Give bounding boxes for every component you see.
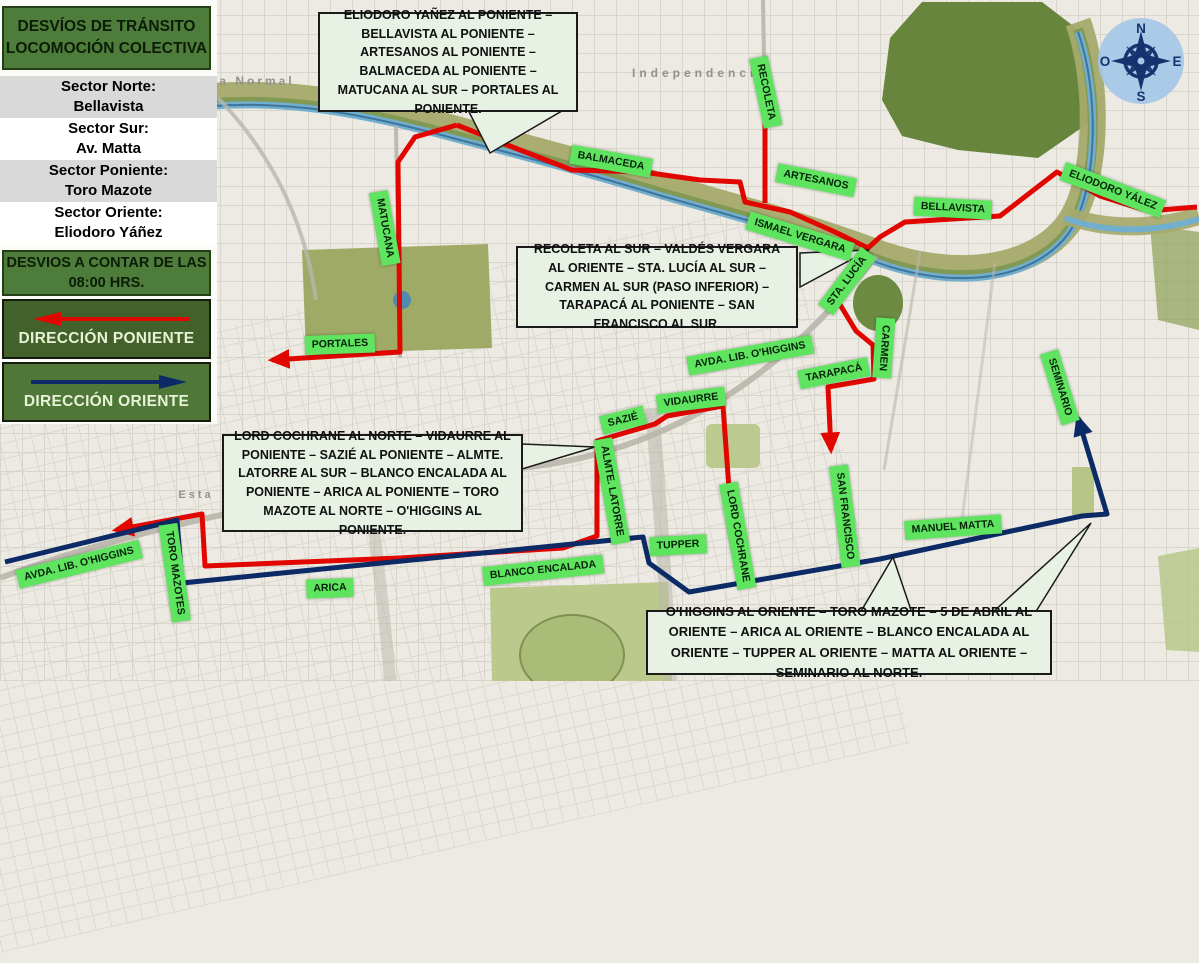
sector-label: Sector Oriente: xyxy=(54,203,162,223)
compass-west: O xyxy=(1100,54,1111,69)
map-text: Independencia xyxy=(632,66,768,80)
map-text: a Normal xyxy=(219,74,294,88)
callout-southwest-detour: LORD COCHRANE AL NORTE – VIDAURRE AL PON… xyxy=(222,434,523,532)
parque-almagro xyxy=(706,424,760,468)
direction-east-legend: DIRECCIÓN ORIENTE xyxy=(2,362,211,422)
compass-rose: N E S O xyxy=(1098,18,1184,104)
sector-norte: Sector Norte: Bellavista xyxy=(0,76,217,118)
callout-north-detour: ELIODORO YAÑEZ AL PONIENTE – BELLAVISTA … xyxy=(318,12,578,112)
east-arrow-icon xyxy=(17,374,197,390)
callout-text: LORD COCHRANE AL NORTE – VIDAURRE AL PON… xyxy=(233,427,512,540)
callout-text: RECOLETA AL SUR – VALDÉS VERGARA AL ORIE… xyxy=(527,240,787,334)
compass-south: S xyxy=(1136,89,1145,104)
compass-north: N xyxy=(1136,21,1146,36)
riverside-park-east xyxy=(1150,225,1199,330)
direction-west-legend: DIRECCIÓN PONIENTE xyxy=(2,299,211,359)
direction-east-label: DIRECCIÓN ORIENTE xyxy=(24,393,189,411)
page-title: DESVÍOS DE TRÁNSITO LOCOMOCIÓN COLECTIVA xyxy=(2,6,211,70)
start-time-notice: DESVIOS A CONTAR DE LAS 08:00 HRS. xyxy=(2,250,211,296)
direction-west-label: DIRECCIÓN PONIENTE xyxy=(19,330,195,348)
sector-value: Av. Matta xyxy=(76,139,141,159)
small-park-southeast xyxy=(1158,548,1199,652)
callout-text: O'HIGGINS AL ORIENTE – TORO MAZOTE – 5 D… xyxy=(657,602,1041,683)
callout-center-detour: RECOLETA AL SUR – VALDÉS VERGARA AL ORIE… xyxy=(516,246,798,328)
sector-label: Sector Sur: xyxy=(68,119,149,139)
street-label-portales: PORTALES xyxy=(304,334,375,355)
west-arrow-icon xyxy=(17,311,197,327)
street-label-arica: ARICA xyxy=(306,578,354,598)
cerro-san-cristobal-park xyxy=(882,2,1090,158)
sector-value: Toro Mazote xyxy=(65,181,152,201)
callout-text: ELIODORO YAÑEZ AL PONIENTE – BELLAVISTA … xyxy=(329,6,567,119)
city-map: N E S O Independenciaa NormalEsta RECOLE… xyxy=(0,0,1199,681)
compass-east: E xyxy=(1172,54,1181,69)
sector-value: Eliodoro Yáñez xyxy=(54,223,162,243)
sector-label: Sector Norte: xyxy=(61,77,156,97)
sector-label: Sector Poniente: xyxy=(49,161,168,181)
legend-panel: DESVÍOS DE TRÁNSITO LOCOMOCIÓN COLECTIVA… xyxy=(0,0,217,424)
map-text: Esta xyxy=(178,489,213,501)
street-label-tupper: TUPPER xyxy=(649,534,706,555)
sector-oriente: Sector Oriente: Eliodoro Yáñez xyxy=(0,202,217,244)
sector-sur: Sector Sur: Av. Matta xyxy=(0,118,217,160)
sector-poniente: Sector Poniente: Toro Mazote xyxy=(0,160,217,202)
sector-value: Bellavista xyxy=(73,97,143,117)
small-park xyxy=(1072,467,1094,515)
callout-southeast-detour: O'HIGGINS AL ORIENTE – TORO MAZOTE – 5 D… xyxy=(646,610,1052,675)
callout-pointer xyxy=(992,523,1091,613)
